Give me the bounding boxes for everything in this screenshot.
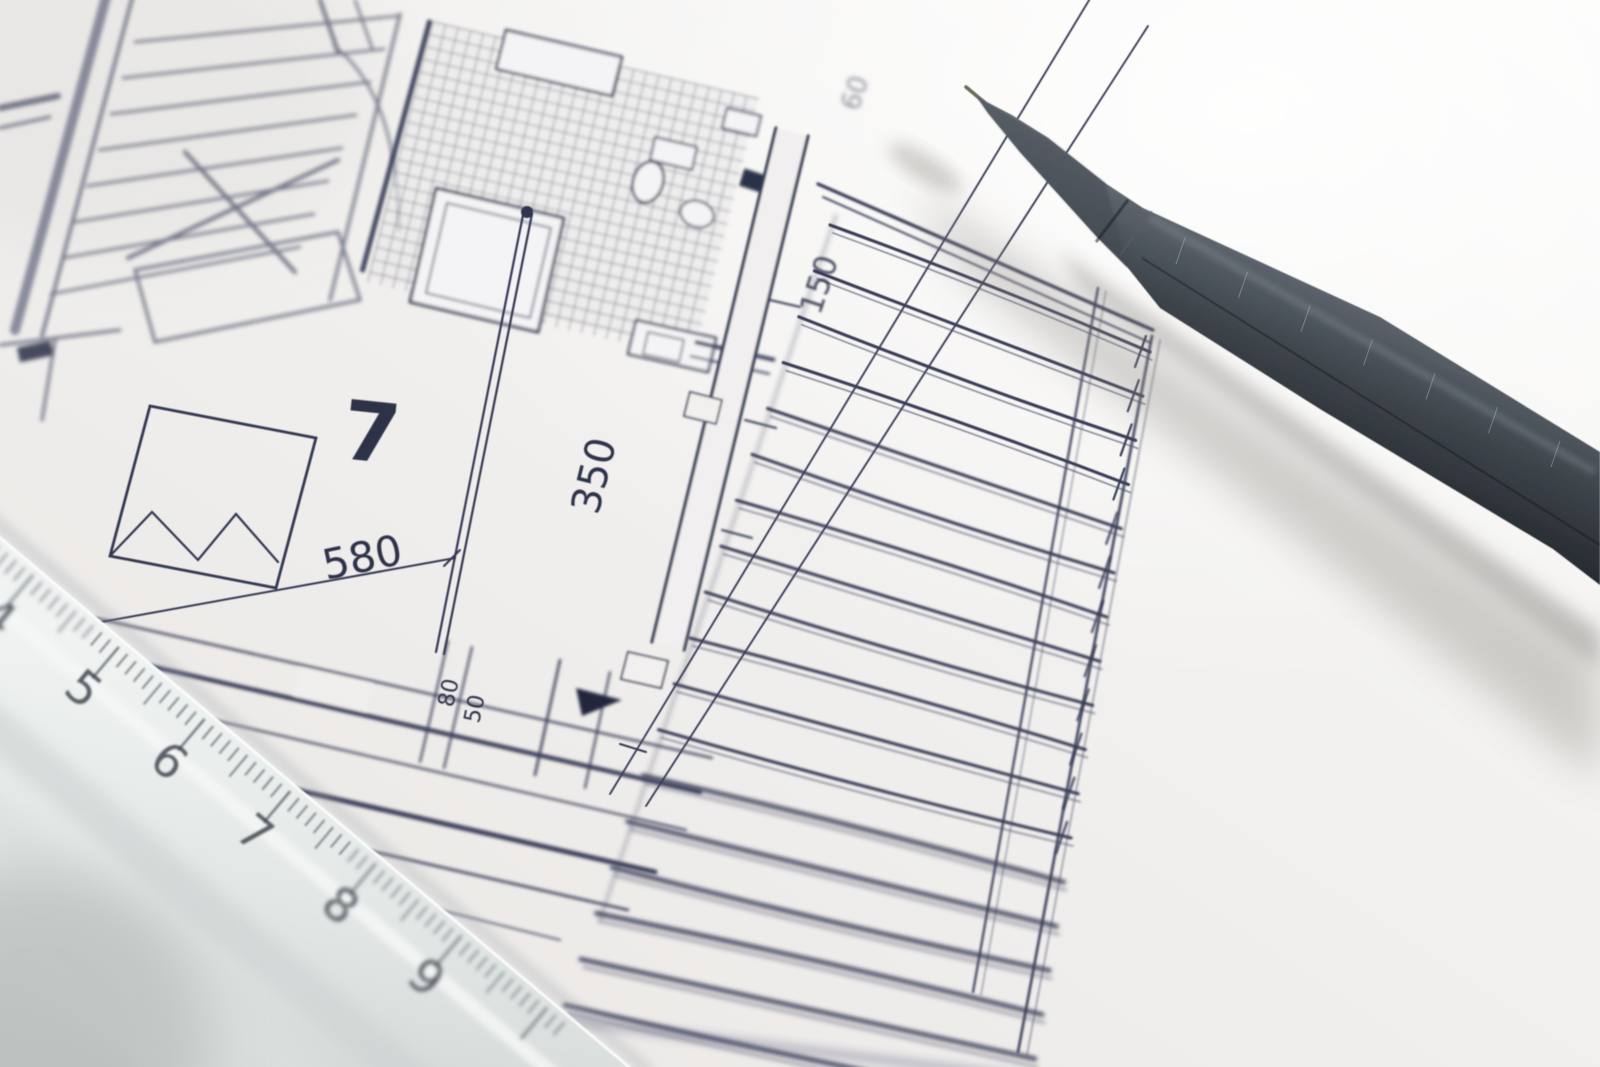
photo-canvas: 7 580 350 150 60 80 50 4 567 89 (0, 0, 1600, 1067)
room-number-label: 7 (338, 383, 405, 483)
door-hinge (521, 206, 533, 218)
floor-plan-photo: 7 580 350 150 60 80 50 4 567 89 (0, 0, 1600, 1067)
